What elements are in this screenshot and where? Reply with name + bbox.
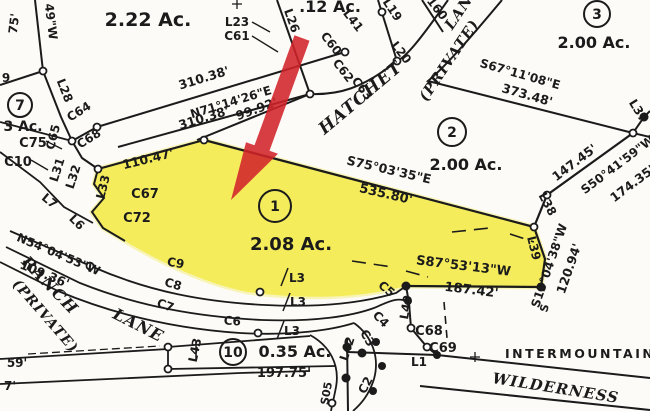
line-l3-a: L3 <box>289 271 305 285</box>
line-9-partial: 9 <box>2 71 10 85</box>
node <box>257 289 264 296</box>
curve-c9: C9 <box>166 255 185 272</box>
corner-dot <box>402 282 411 291</box>
corner-dot <box>378 362 386 370</box>
lot-top-left-area: 2.22 Ac. <box>105 9 192 31</box>
dashed-tie-line-c <box>444 302 447 338</box>
distance-19775: 197.75' <box>257 366 311 381</box>
corner-dot <box>358 349 367 358</box>
lot1-number: 1 <box>270 199 280 215</box>
lot2-number: 2 <box>447 125 457 141</box>
lot1-area: 2.08 Ac. <box>250 234 332 255</box>
l23-leader-line <box>252 22 270 32</box>
curve-c64: C64 <box>64 99 93 124</box>
lot10-area: 0.35 Ac. <box>259 342 332 361</box>
top-left-vertical-line <box>35 0 43 71</box>
curve-c8: C8 <box>163 275 183 293</box>
corner-dot <box>342 374 351 383</box>
distance-59-partial: 59' <box>7 356 27 370</box>
lot3-number: 3 <box>592 7 602 23</box>
cross-tick-top <box>232 0 242 9</box>
curve-c7: C7 <box>155 296 176 315</box>
curve-c72: C72 <box>123 211 151 226</box>
node <box>630 130 637 137</box>
line-l28: L28 <box>54 77 76 105</box>
plat-map-canvas: 1 2 3 7 10 2.22 Ac. .12 Ac. 2.00 Ac. 2.0… <box>0 0 650 411</box>
node <box>165 344 172 351</box>
curve-c67: C67 <box>131 187 159 202</box>
node <box>165 366 172 373</box>
lot7-number: 7 <box>15 98 25 114</box>
curve-c68-lower: C68 <box>415 324 443 339</box>
bearing-49w-partial: 49"W <box>42 3 60 41</box>
node <box>408 325 415 332</box>
road-hatchet-name: HATCHET <box>314 57 407 140</box>
line-l23: L23 <box>225 15 249 29</box>
road-wilderness-name: WILDERNESS <box>491 369 620 407</box>
l3-tick-c <box>277 321 284 339</box>
line-l42: L42 <box>337 335 358 362</box>
node <box>95 166 102 173</box>
c61-leader-line <box>252 36 278 52</box>
line-l1: L1 <box>411 355 427 369</box>
line-l3-b: L3 <box>290 295 306 309</box>
line-l40: L40 <box>397 294 415 320</box>
curve-c4: C4 <box>370 308 392 330</box>
node <box>201 137 208 144</box>
distance-75-partial: 75' <box>6 13 22 35</box>
bearing-s-partial: S <box>537 303 552 314</box>
lot2-area: 2.00 Ac. <box>430 155 503 174</box>
line-l43: L43 <box>186 337 205 364</box>
curve-c10: C10 <box>4 155 32 170</box>
curve-c61: C61 <box>224 29 250 43</box>
curve-c75: C75 <box>19 136 47 151</box>
lot7-area: 3 Ac. <box>3 119 42 135</box>
line-l6: L6 <box>66 212 87 233</box>
curve-c6: C6 <box>223 313 241 328</box>
intermountain-watermark: INTERMOUNTAIN <box>505 346 650 361</box>
line-l3-c: L3 <box>284 324 300 338</box>
node <box>255 330 262 337</box>
node <box>40 68 47 75</box>
c10-leader-line <box>31 160 48 170</box>
plat-map: 1 2 3 7 10 2.22 Ac. .12 Ac. 2.00 Ac. 2.0… <box>0 0 650 411</box>
cross-tick-bottom <box>470 352 480 362</box>
lot3-area: 2.00 Ac. <box>558 33 631 52</box>
distance-7-partial: 7' <box>4 379 16 393</box>
node <box>307 91 314 98</box>
curve-c69: C69 <box>429 341 457 356</box>
node <box>531 224 538 231</box>
line-l7: L7 <box>39 190 60 211</box>
line-l32: L32 <box>63 163 84 190</box>
lot10-number: 10 <box>223 345 243 361</box>
